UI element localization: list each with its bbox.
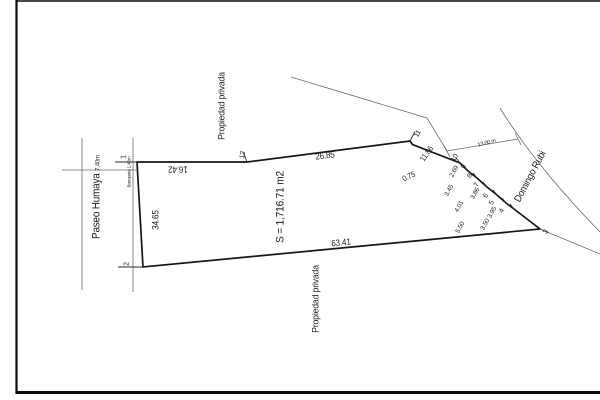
vertex-12: 12 [239,151,247,159]
west-street-label: Paseo Humaya 7.40m [92,155,103,239]
dim-west: 34.65 [152,210,161,229]
vertex-1: 1 [121,155,128,159]
dim-north-a: 16.42 [168,165,187,174]
neighbor-boundary-line [291,77,447,151]
vertex-2: 2 [124,262,131,266]
west-street-width: 7.40m [95,155,102,171]
sidewalk-label: Banqueta 1.40m [128,157,133,188]
lot-boundary [137,141,540,267]
east-street-curve [500,108,600,232]
survey-plan-page: Paseo Humaya 7.40m Banqueta 1.40m Propie… [0,0,600,400]
north-neighbor-label: Propiedad privada [217,72,227,140]
area-label: S = 1,716.71 m2 [276,171,287,243]
west-street-name: Paseo Humaya [91,173,103,239]
south-neighbor-label: Propiedad privada [311,265,321,333]
